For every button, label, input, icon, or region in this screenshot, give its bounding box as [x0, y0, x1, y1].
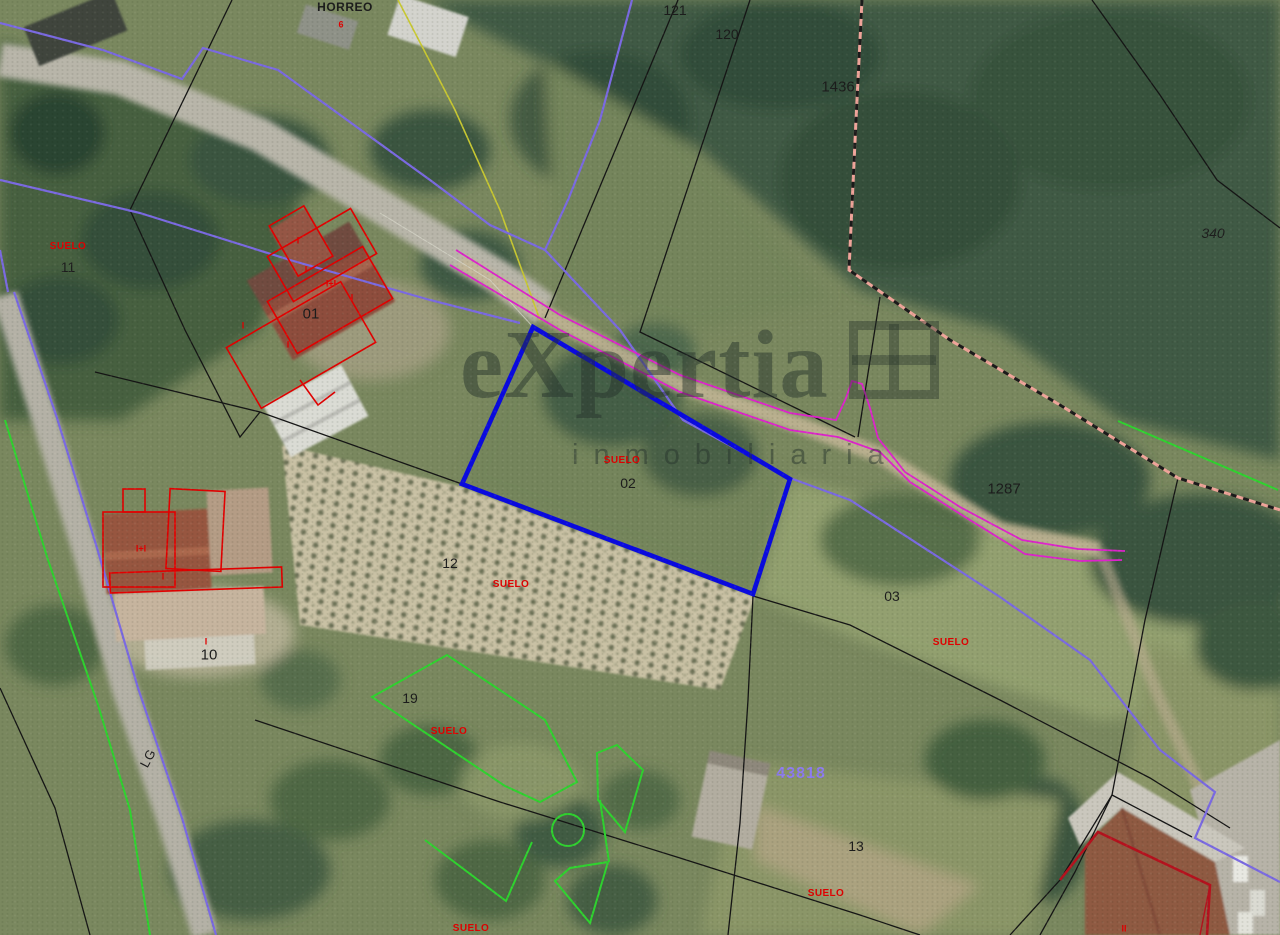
land-use-label: SUELO: [933, 638, 969, 648]
path-lines: [450, 250, 1125, 561]
parcel-number: 02: [620, 476, 636, 490]
floor-mark: II: [1121, 925, 1126, 934]
floor-mark: I+I: [326, 280, 336, 289]
parcel-number: 121: [663, 3, 686, 17]
parcel-number: 19: [402, 691, 418, 705]
road-edge-lines: [0, 0, 1280, 935]
building-outline-industrial: [1060, 832, 1210, 935]
parcel-number: 10: [201, 648, 218, 663]
cadastral-overlay-layer: [0, 0, 1280, 935]
parcel-number: 120: [715, 27, 738, 41]
land-use-label: SUELO: [604, 456, 640, 466]
floor-mark: I: [287, 341, 290, 350]
parcel-number: 340: [1201, 226, 1224, 240]
cadastral-reference: 43818: [776, 766, 826, 782]
parcel-boundary-lines: [0, 0, 1280, 935]
construction-mark: I: [205, 638, 208, 647]
parcel-number: 1436: [821, 80, 854, 95]
parcel-number: 1287: [987, 482, 1020, 497]
land-use-label: SUELO: [493, 580, 529, 590]
land-use-label: SUELO: [50, 242, 86, 252]
land-use-label: SUELO: [431, 727, 467, 737]
floor-mark: I: [351, 294, 354, 303]
parcel-number: 12: [442, 556, 458, 570]
building-outlines: [103, 206, 393, 593]
floor-mark: I: [297, 237, 300, 246]
land-use-label: SUELO: [453, 924, 489, 934]
municipal-boundary-line: [849, 0, 1280, 510]
fence-line: [380, 213, 533, 327]
aerial-map-viewport[interactable]: eXpertia inmobiliaria HORREO 6 121 120 1…: [0, 0, 1280, 935]
yellow-boundary-line: [398, 0, 540, 320]
floor-mark: I: [305, 266, 308, 275]
floor-mark: I: [162, 573, 165, 582]
parcel-number: 11: [61, 260, 76, 274]
floor-mark: I: [242, 322, 245, 331]
construction-mark: 6: [338, 21, 343, 30]
parcel-number: 03: [884, 589, 900, 603]
vegetation-outlines: [5, 420, 1278, 935]
land-use-label: SUELO: [808, 889, 844, 899]
place-label: HORREO: [317, 1, 373, 13]
floor-mark: I+I: [136, 545, 146, 554]
parcel-number: 01: [303, 307, 320, 322]
parcel-number: 13: [848, 839, 864, 853]
